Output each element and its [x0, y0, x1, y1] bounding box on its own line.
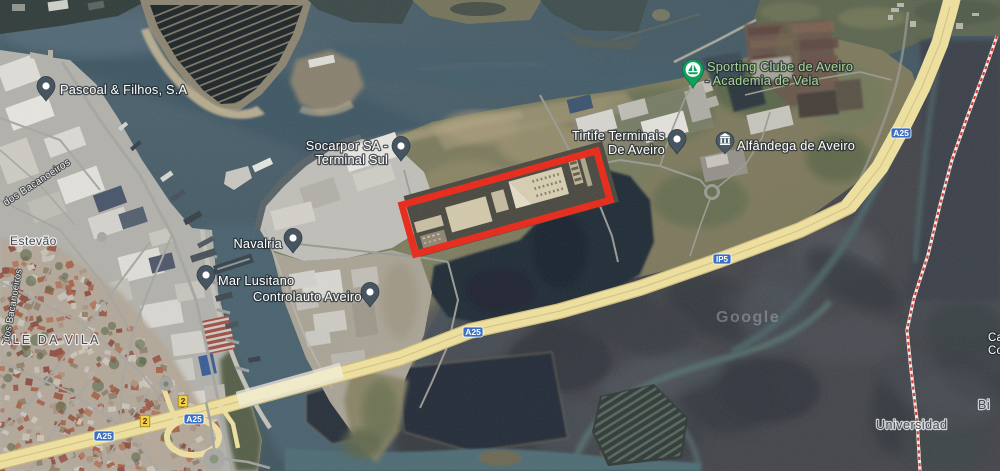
svg-text:A25: A25 — [465, 327, 481, 337]
svg-text:Controlauto Aveiro: Controlauto Aveiro — [253, 289, 362, 304]
svg-text:A25: A25 — [893, 128, 909, 138]
svg-text:Estevão: Estevão — [10, 234, 57, 248]
svg-text:Socarpor SA -: Socarpor SA - — [306, 138, 388, 153]
svg-text:2: 2 — [143, 416, 148, 426]
svg-text:- Academia de Vela: - Academia de Vela — [705, 73, 820, 88]
svg-text:Universidad: Universidad — [876, 418, 948, 432]
svg-text:A25: A25 — [96, 431, 112, 441]
svg-text:A25: A25 — [186, 414, 202, 424]
svg-text:Sporting Clube de Aveiro: Sporting Clube de Aveiro — [707, 59, 853, 74]
svg-text:Pascoal & Filhos, S.A: Pascoal & Filhos, S.A — [60, 82, 188, 97]
svg-text:Alfândega de Aveiro: Alfândega de Aveiro — [737, 138, 855, 153]
svg-text:2: 2 — [181, 396, 186, 406]
svg-text:Navalria: Navalria — [233, 236, 282, 251]
svg-text:De Aveiro: De Aveiro — [608, 142, 665, 157]
svg-text:Terminal Sul: Terminal Sul — [315, 152, 388, 167]
svg-text:IP5: IP5 — [716, 255, 729, 264]
svg-text:Co: Co — [988, 345, 1000, 357]
svg-text:Bi: Bi — [978, 398, 990, 412]
svg-text:Ca: Ca — [988, 332, 1000, 344]
svg-text:Tirtife Terminais: Tirtife Terminais — [572, 128, 665, 143]
svg-text:ALE DA VILA: ALE DA VILA — [2, 333, 101, 347]
svg-text:Mar Lusitano: Mar Lusitano — [218, 273, 294, 288]
